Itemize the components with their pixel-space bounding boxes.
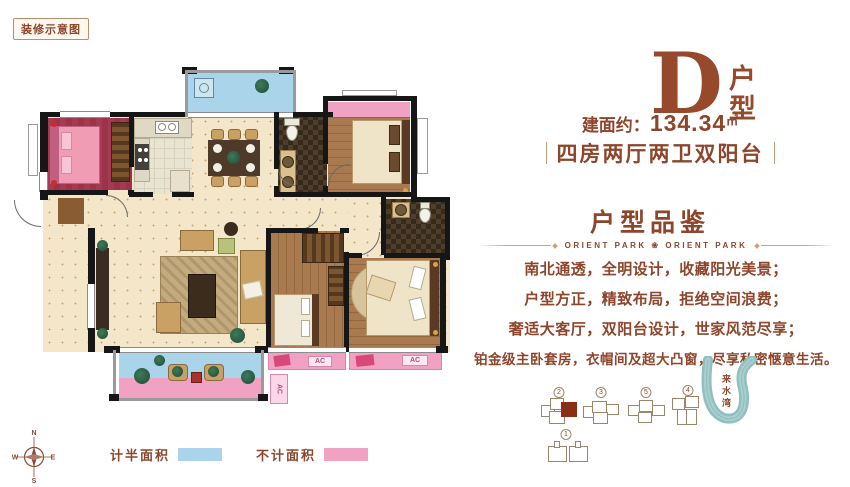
cluster-number: 5 <box>641 387 652 398</box>
bay-window-outline <box>342 90 397 96</box>
building-cluster: 2 <box>541 398 577 428</box>
divider-diamond-icon <box>755 243 761 249</box>
unit-letter: D <box>650 48 723 119</box>
ac-platform: AC <box>270 374 288 404</box>
bay-window-outline <box>417 118 428 174</box>
wall <box>381 197 386 255</box>
wall <box>109 394 119 401</box>
sofa-armchair <box>180 230 214 251</box>
bedside-lamp-icon <box>433 262 438 267</box>
living-plant-icon <box>97 328 108 339</box>
side-table <box>224 222 238 236</box>
washing-machine-drum-icon <box>199 83 209 93</box>
window <box>39 172 48 192</box>
wall <box>104 346 120 353</box>
bay-window-outline <box>28 124 38 176</box>
legend-excluded-label: 不计面积 <box>256 445 316 464</box>
area-unit: ㎡ <box>726 114 738 128</box>
living-plant-icon <box>97 240 108 251</box>
divider-bar <box>774 142 775 164</box>
wall <box>445 197 450 260</box>
chair-plant-icon <box>208 366 219 377</box>
bedroom-3-pillow <box>301 320 310 337</box>
entry-door-arc <box>14 200 41 227</box>
floor-plan: AC AC AC <box>12 52 482 427</box>
kitchen-sink-bowl <box>158 123 166 131</box>
dining-chair <box>228 129 241 140</box>
ac-unit-label: AC <box>308 356 332 367</box>
bedroom-1-pillow <box>61 156 72 174</box>
orient-park-divider: ORIENT PARK ❀ ORIENT PARK <box>478 241 834 250</box>
wall <box>323 101 328 164</box>
layout-summary-text: 四房两厅两卫双阳台 <box>557 138 764 168</box>
window <box>349 347 442 353</box>
bedroom-3-wardrobe <box>302 233 344 263</box>
window <box>115 347 261 353</box>
wall <box>88 228 95 286</box>
balcony-plant-icon <box>154 355 165 366</box>
fridge-icon <box>170 170 190 192</box>
bedside-lamp-icon <box>51 121 57 127</box>
burner-icon <box>144 158 148 162</box>
compass-north: N <box>31 430 36 437</box>
plate-icon <box>246 144 255 153</box>
area-value: 134.34 <box>650 110 726 136</box>
balcony-rail <box>113 350 116 400</box>
balcony-table <box>191 372 202 383</box>
bedroom-2-headboard <box>402 120 410 184</box>
plate-icon <box>213 163 222 172</box>
cluster-number: 3 <box>596 387 607 398</box>
bedroom-2-bay-window <box>328 102 410 117</box>
entry-doormat <box>58 198 84 224</box>
layout-summary: 四房两厅两卫双阳台 <box>525 138 795 168</box>
description-line: 户型方正，精致布局，拒绝空间浪费； <box>468 288 844 309</box>
wall <box>172 192 194 197</box>
wall <box>344 252 349 352</box>
balcony-plant-icon <box>241 370 255 384</box>
bedroom-3-headboard <box>312 294 319 346</box>
wall <box>440 258 446 352</box>
wall <box>266 228 271 352</box>
living-plant-icon <box>230 328 245 343</box>
window <box>60 111 110 118</box>
building-cluster: 1 <box>548 440 584 470</box>
legend-excluded-swatch <box>324 448 368 461</box>
balcony-rail <box>113 398 264 401</box>
wall <box>323 192 416 197</box>
balcony-rail <box>261 350 264 400</box>
sink-icon <box>395 204 407 216</box>
bedside-lamp-icon <box>433 330 438 335</box>
cluster-number: 1 <box>561 429 572 440</box>
section-heading: 户型品鉴 <box>490 203 810 239</box>
compass-icon: N E S W <box>12 428 56 484</box>
bedroom-1-headboard <box>50 126 58 184</box>
wall <box>340 228 349 233</box>
coffee-table <box>188 274 216 318</box>
burner-icon <box>144 148 148 152</box>
orient-park-text: ORIENT PARK ❀ ORIENT PARK <box>565 241 748 250</box>
tv-cabinet <box>96 248 109 330</box>
building-cluster: 5 <box>628 398 664 428</box>
ac-unit-label: AC <box>402 355 428 366</box>
dining-chair <box>211 129 224 140</box>
compass-east: E <box>51 455 56 462</box>
wall <box>349 253 362 258</box>
legend-half-area-swatch <box>178 448 222 461</box>
bay-cushion <box>355 354 374 367</box>
area-label: 建面约： <box>582 116 650 135</box>
balcony-rail <box>188 70 293 73</box>
balcony-rail <box>293 70 296 117</box>
burner-icon <box>138 158 142 162</box>
description-line: 奢适大客厅，双阳台设计，世家风范尽享； <box>468 318 844 339</box>
bedroom-2-pillow <box>389 152 400 172</box>
legend-half-area-label: 计半面积 <box>110 445 170 464</box>
balcony-plant-icon <box>255 79 269 93</box>
master-headboard <box>430 260 439 336</box>
burner-icon <box>138 148 142 152</box>
description-line: 铂金级主卧套房，衣帽间及超大凸窗，尽享私密惬意生活。 <box>468 348 844 368</box>
table-centerpiece-icon <box>227 151 240 164</box>
plate-icon <box>246 163 255 172</box>
description-line: 南北通透，全明设计，收藏阳光美景； <box>468 258 844 279</box>
divider-bar <box>546 142 547 164</box>
area-line: 建面约：134.34㎡ <box>540 110 780 137</box>
compass-south: S <box>32 478 37 484</box>
wall <box>258 394 268 401</box>
river-label: 来水湾 <box>720 374 733 410</box>
description-block: 南北通透，全明设计，收藏阳光美景； 户型方正，精致布局，拒绝空间浪费； 奢适大客… <box>468 258 844 377</box>
plate-icon <box>213 144 222 153</box>
building-cluster: 4 <box>670 396 706 426</box>
wall <box>88 328 95 352</box>
window <box>268 347 346 353</box>
building-cluster: 3 <box>583 398 619 428</box>
ac-text: AC <box>276 384 283 394</box>
ac-text: AC <box>410 357 420 364</box>
divider-line <box>761 245 834 246</box>
wall <box>40 112 48 174</box>
dining-chair <box>245 176 258 187</box>
window <box>87 284 95 330</box>
bedside-lamp-icon <box>51 180 57 186</box>
divider-diamond-icon <box>552 243 558 249</box>
bedroom-2-pillow <box>389 125 400 145</box>
balcony-rail <box>185 70 188 117</box>
cluster-number: 4 <box>683 385 694 396</box>
sofa-small <box>156 302 181 333</box>
wall <box>129 192 153 197</box>
wall <box>436 346 448 353</box>
bay-cushion <box>273 354 290 367</box>
sink-icon <box>282 156 294 168</box>
bedroom-3-wardrobe-side <box>328 266 344 306</box>
dining-chair <box>228 176 241 187</box>
bedroom-1-pillow <box>61 132 72 150</box>
wall <box>384 253 450 258</box>
dining-chair <box>211 176 224 187</box>
compass-west: W <box>12 455 19 462</box>
dining-chair <box>245 129 258 140</box>
accent-chair <box>218 238 235 254</box>
divider-line <box>478 245 551 246</box>
bedroom-1-wardrobe <box>111 122 130 182</box>
kitchen-sink-bowl <box>168 123 176 131</box>
decoration-badge: 装修示意图 <box>13 18 89 40</box>
legend: 计半面积 不计面积 <box>110 445 368 464</box>
chair-plant-icon <box>172 366 183 377</box>
cluster-number: 2 <box>554 387 565 398</box>
bedroom-3-pillow <box>301 298 310 315</box>
wall <box>274 112 279 169</box>
balcony-plant-icon <box>134 368 150 384</box>
wall <box>323 96 416 101</box>
wall <box>266 228 318 233</box>
ac-text: AC <box>315 358 325 365</box>
wall <box>129 112 134 167</box>
wall <box>40 190 108 195</box>
